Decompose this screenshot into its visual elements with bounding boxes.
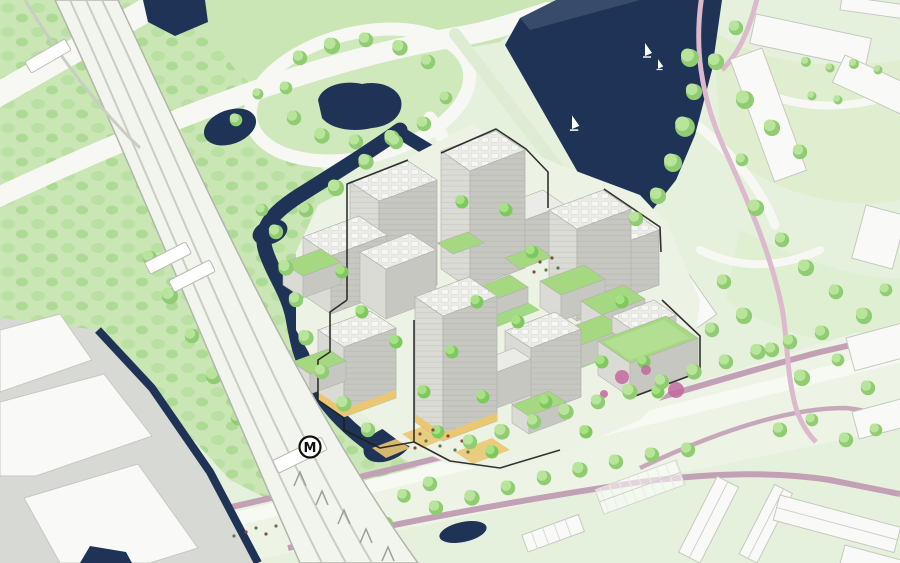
tower-south	[415, 277, 497, 441]
metro-station-marker: M	[300, 437, 321, 458]
mound-pond	[318, 83, 401, 130]
masterplan-illustration: M	[0, 0, 900, 563]
metro-station-label: M	[304, 441, 317, 456]
masterplan-svg: M	[0, 0, 900, 563]
